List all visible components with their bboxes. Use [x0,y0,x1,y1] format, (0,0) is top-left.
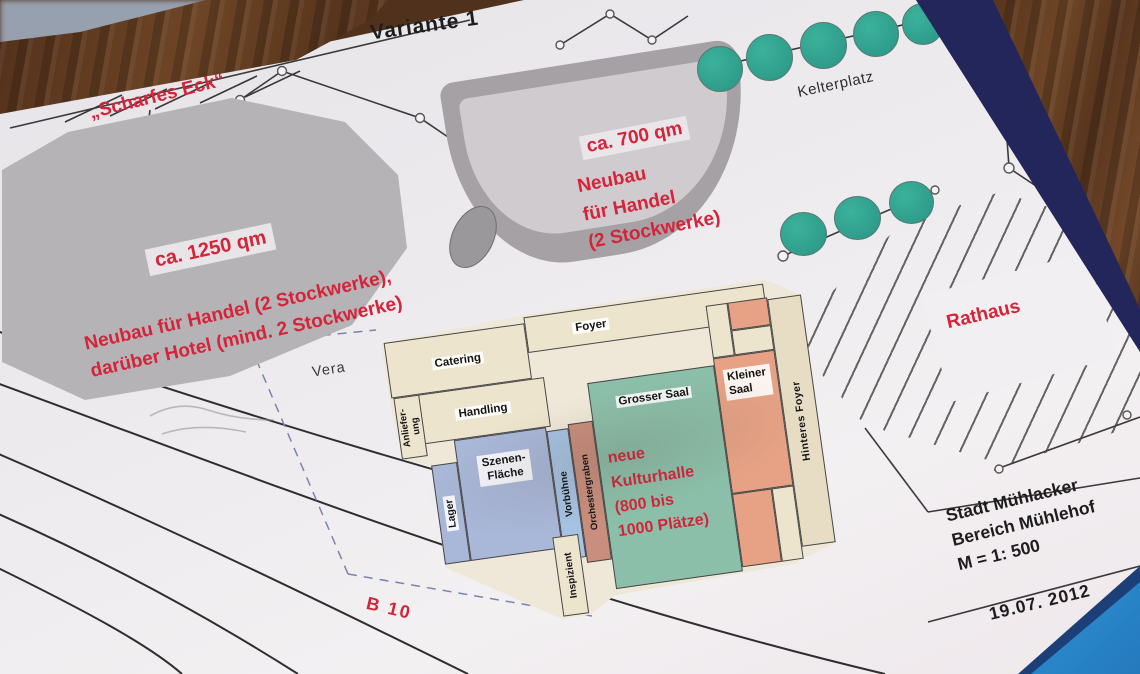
room-label: Szenen-Fläche [477,449,533,487]
room-label: Vorbühne [558,471,575,518]
tree-circle [746,34,793,81]
kulturhalle-floorplan: Foyer Catering Handling Anliefer- ung Sz… [376,272,846,644]
room-label: Grosser Saal [615,386,693,409]
room-label: Inspizient [562,552,579,599]
tree-circle [697,46,743,92]
room-label: KleinerSaal [722,364,773,401]
room-label: Orchestergraben [579,453,601,530]
room-label: ung [409,417,422,436]
tree-circle [889,181,934,224]
tree-circle [780,212,827,256]
room-label: Catering [431,351,485,370]
tree-circle [853,11,899,57]
tree-circle [834,196,881,240]
room-szenenflaeche: Szenen-Fläche [454,427,563,561]
tree-circle [800,22,847,69]
room-label: Lager [443,495,460,531]
room-label: Handling [455,401,511,421]
kulturhalle-annotation: neue Kulturhalle (800 bis 1000 Plätze) [606,434,711,545]
room-label: Hinteres Foyer [790,380,813,461]
photo-of-site-plan: Foyer Catering Handling Anliefer- ung Sz… [0,0,1140,674]
room-label: Foyer [572,317,611,334]
